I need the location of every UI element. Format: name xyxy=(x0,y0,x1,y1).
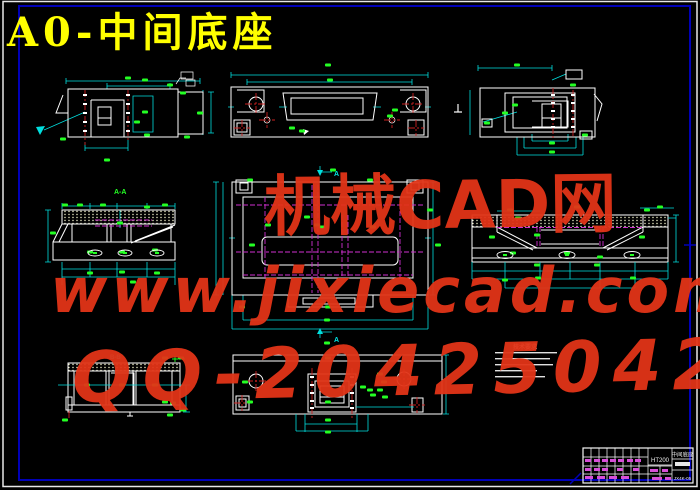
dim-text-mark xyxy=(514,64,520,67)
surface-mark-boxes xyxy=(176,72,195,86)
dim-text-mark xyxy=(197,112,203,115)
title-block-entry xyxy=(585,476,593,479)
title-block-entry xyxy=(594,459,600,462)
title-block-text-blob xyxy=(675,462,690,466)
bolt-mark xyxy=(83,94,87,96)
dim-text-mark xyxy=(644,209,650,212)
bolt-mark xyxy=(83,121,87,123)
central-slot xyxy=(283,93,377,120)
dim-text-mark xyxy=(502,112,508,115)
dim-text-mark xyxy=(144,206,150,209)
dim-text-mark xyxy=(249,244,255,247)
view-top-plan xyxy=(228,72,431,137)
title-block-entry xyxy=(635,459,641,462)
title-block-entry xyxy=(602,459,608,462)
dim-text-mark xyxy=(639,236,645,239)
bolt-mark xyxy=(83,112,87,114)
bolt-mark xyxy=(571,118,575,120)
title-block-entry xyxy=(594,468,600,471)
watermark-line-3: QQ-20425042 xyxy=(71,323,700,419)
dim-text-mark xyxy=(184,136,190,139)
dim-text-mark xyxy=(387,115,393,118)
dim-text-mark xyxy=(62,204,68,207)
drawing-number-cell: JX4K-05 xyxy=(674,476,692,481)
title-block-entry xyxy=(627,459,633,462)
title-block-entry xyxy=(618,459,624,462)
view-top-right-end xyxy=(454,65,602,155)
bolt-mark xyxy=(83,130,87,132)
part-name-cell: 中间底座 xyxy=(671,451,694,459)
dim-text-mark xyxy=(117,222,123,225)
title-block: HT200 中间底座 JX4K-05 xyxy=(583,448,694,483)
dim-text-mark xyxy=(247,179,253,182)
bolt-mark xyxy=(571,94,575,96)
frame-fold-mark xyxy=(570,473,581,484)
cad-drawing-canvas: A-A A A B-B 技术 xyxy=(0,0,700,490)
title-block-entry xyxy=(621,476,629,479)
title-block-entry xyxy=(662,469,668,472)
dim-text-mark xyxy=(570,84,576,87)
dim-text-mark xyxy=(180,92,186,95)
centering-mark xyxy=(684,239,696,251)
dim-text-mark xyxy=(142,79,148,82)
dim-text-mark xyxy=(325,419,331,422)
title-block-entry xyxy=(609,476,617,479)
dim-text-mark xyxy=(484,122,490,125)
dim-text-mark xyxy=(62,419,68,422)
watermark-line-1: 机械CAD网 xyxy=(264,165,617,246)
dim-text-mark xyxy=(299,130,305,133)
bolt-mark xyxy=(83,103,87,105)
title-block-entry xyxy=(597,476,605,479)
bolt-mark xyxy=(571,126,575,128)
watermark-line-2: www.jixiecad.com xyxy=(50,254,700,327)
bolt-mark xyxy=(551,110,555,112)
dim-text-mark xyxy=(60,138,66,141)
dim-text-mark xyxy=(549,142,555,145)
dim-text-mark xyxy=(549,151,555,154)
title-block-entry xyxy=(585,459,591,462)
bolt-mark xyxy=(126,130,130,132)
title-block-entry xyxy=(665,477,671,480)
bolt-mark xyxy=(551,118,555,120)
dim-text-mark xyxy=(50,232,56,235)
dim-text-mark xyxy=(512,104,518,107)
title-block-entry xyxy=(633,468,639,471)
title-block-entry xyxy=(610,459,616,462)
title-block-entry xyxy=(617,468,623,471)
dim-text-mark xyxy=(100,204,106,207)
dim-text-mark xyxy=(582,134,588,137)
dim-text-mark xyxy=(392,109,398,112)
dim-text-mark xyxy=(325,431,331,434)
section-a-a-label: A-A xyxy=(114,189,126,196)
title-block-entry xyxy=(602,468,608,471)
title-block-entry xyxy=(650,469,658,472)
dim-text-mark xyxy=(289,127,295,130)
title-block-entry xyxy=(585,468,591,471)
dim-text-mark xyxy=(77,204,83,207)
bolt-mark xyxy=(551,94,555,96)
title-block-entry xyxy=(652,477,662,480)
body-outline xyxy=(231,87,428,137)
bolt-mark xyxy=(571,110,575,112)
body-outline xyxy=(480,70,602,139)
dim-text-mark xyxy=(144,134,150,137)
bolt-mark xyxy=(126,94,130,96)
bolt-mark xyxy=(126,112,130,114)
bolt-mark xyxy=(551,102,555,104)
dim-text-mark xyxy=(134,121,140,124)
bolt-mark xyxy=(551,126,555,128)
material-cell: HT200 xyxy=(651,458,670,464)
dim-text-mark xyxy=(325,64,331,67)
leader-arrow xyxy=(36,126,45,135)
watermark: 机械CAD网 www.jixiecad.com QQ-20425042 xyxy=(50,165,700,419)
dim-text-mark xyxy=(435,244,441,247)
dim-text-mark xyxy=(104,159,110,162)
dim-text-mark xyxy=(657,206,663,209)
bolt-mark xyxy=(126,121,130,123)
dim-text-mark xyxy=(167,84,173,87)
datum-symbol xyxy=(454,104,462,112)
dim-text-mark xyxy=(125,77,131,80)
dim-text-mark xyxy=(162,204,168,207)
bolt-mark xyxy=(571,102,575,104)
bolt-mark xyxy=(126,103,130,105)
dim-text-mark xyxy=(142,111,148,114)
dim-text-mark xyxy=(327,79,333,82)
drawing-title: A0-中间底座 xyxy=(6,9,277,56)
